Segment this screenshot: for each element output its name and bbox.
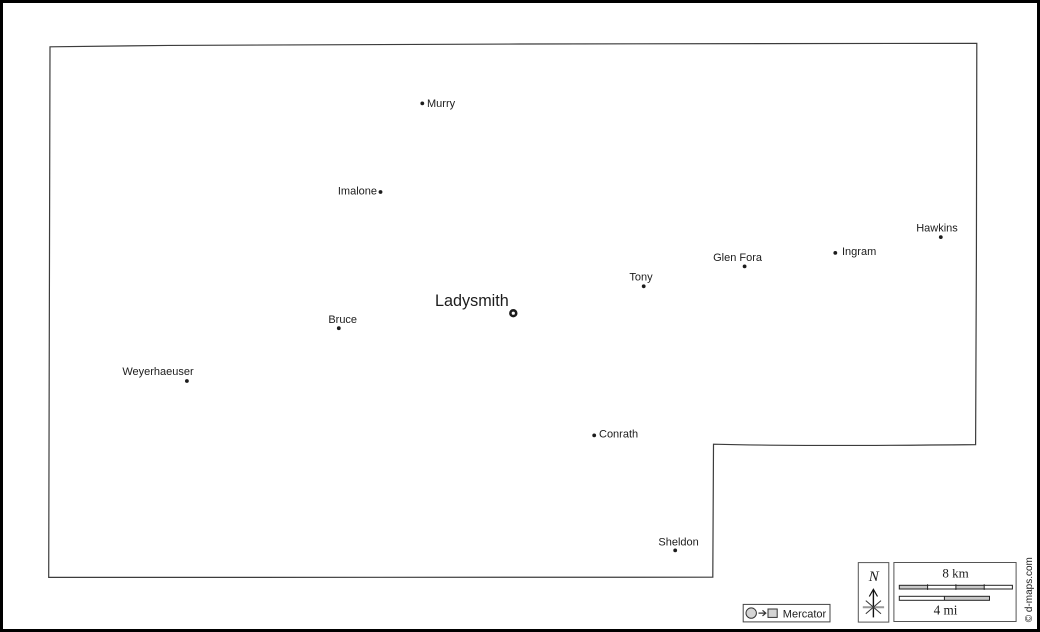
- svg-text:Ingram: Ingram: [842, 246, 876, 258]
- svg-text:N: N: [868, 569, 880, 585]
- svg-text:Conrath: Conrath: [599, 429, 638, 441]
- svg-text:Mercator: Mercator: [783, 609, 827, 621]
- svg-text:Tony: Tony: [629, 271, 653, 283]
- svg-text:Sheldon: Sheldon: [658, 536, 698, 548]
- svg-text:Hawkins: Hawkins: [916, 223, 958, 235]
- svg-text:Bruce: Bruce: [328, 314, 357, 326]
- svg-text:Glen Fora: Glen Fora: [713, 252, 763, 264]
- svg-text:Weyerhaeuser: Weyerhaeuser: [122, 366, 194, 378]
- svg-text:8 km: 8 km: [942, 566, 968, 581]
- svg-text:Imalone: Imalone: [338, 186, 377, 198]
- svg-text:Murry: Murry: [427, 98, 456, 110]
- svg-text:Ladysmith: Ladysmith: [435, 292, 509, 310]
- svg-text:© d-maps.com: © d-maps.com: [1024, 557, 1035, 622]
- svg-text:4 mi: 4 mi: [934, 602, 958, 617]
